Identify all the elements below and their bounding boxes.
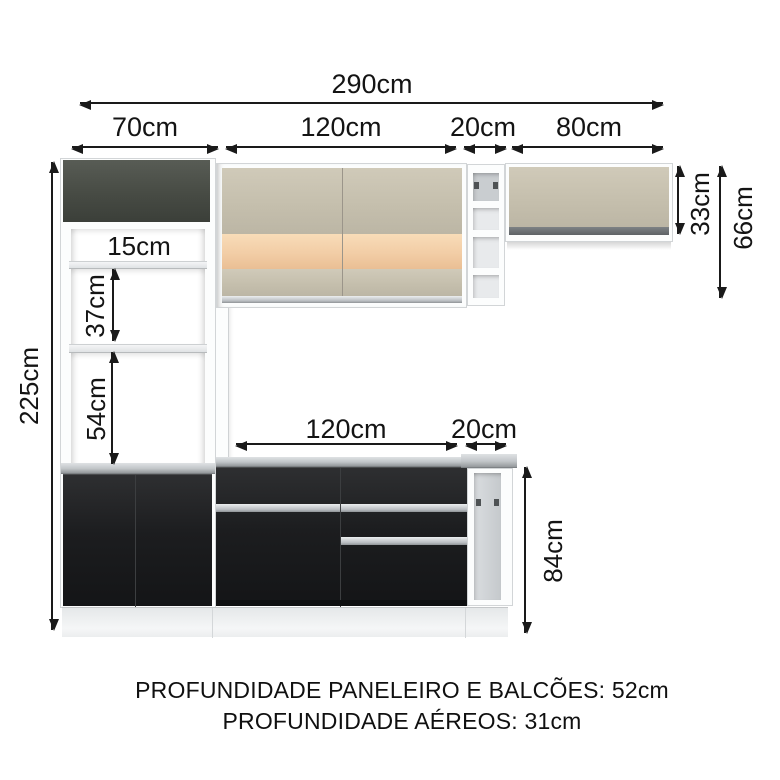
dim-arrow-33cm (677, 166, 679, 234)
niche-cell-4 (473, 275, 499, 298)
tall-base-door-divider (135, 475, 136, 607)
dim-arrow-total-width (80, 102, 663, 104)
plinth (62, 607, 508, 637)
dim-label-54cm: 54cm (83, 377, 109, 441)
tall-cabinet-base-top (61, 463, 215, 474)
hinge-icon (474, 182, 479, 189)
wall-cabinet-80-shadow (507, 242, 671, 250)
end-unit-interior (474, 473, 501, 600)
accent-strip-right (343, 234, 463, 269)
dim-label-33cm: 33cm (687, 172, 713, 236)
dim-arrow-37cm (112, 269, 114, 341)
dim-arrow-20cm-top (464, 146, 506, 148)
dim-label-15cm: 15cm (107, 233, 171, 260)
upper-cabinet-handle-rail (222, 296, 462, 303)
kitchen-dimensions-diagram: 290cm 70cm 120cm 20cm 80cm 225cm 15cm 37… (0, 0, 780, 780)
dim-label-20cm-top: 20cm (450, 113, 516, 141)
hinge-icon (494, 499, 499, 506)
niche-cell-3 (473, 237, 499, 268)
depth-note-line1: PROFUNDIDADE PANELEIRO E BALCÕES: 52cm (135, 676, 669, 705)
dim-label-20cm-base: 20cm (451, 415, 517, 443)
hinge-icon (476, 499, 481, 506)
base-cabinet-120 (216, 467, 467, 606)
accent-strip-left (222, 234, 342, 269)
tall-cabinet-shelf-1 (69, 261, 207, 269)
tall-cabinet-top-door (63, 160, 210, 222)
upper-cabinet-door-right (343, 168, 463, 234)
dim-label-66cm: 66cm (730, 186, 756, 250)
upper-cabinet-door-left (222, 168, 342, 234)
dim-arrow-120cm-base (236, 443, 457, 445)
dim-label-225cm: 225cm (16, 347, 42, 425)
end-unit-countertop (461, 454, 517, 468)
dim-label-80cm: 80cm (556, 113, 622, 141)
hinge-icon (493, 182, 498, 189)
upper-cabinet-120 (216, 163, 467, 308)
wall-cabinet-80-door (509, 167, 669, 227)
dim-arrow-54cm (111, 352, 113, 464)
dim-arrow-120cm-top (226, 146, 456, 148)
dim-arrow-20cm-base (466, 443, 506, 445)
wall-cabinet-80-front (509, 167, 669, 227)
base-handle-rail-top (216, 504, 467, 512)
wall-cabinet-80-handle-rail (509, 227, 669, 235)
tall-cabinet-shelf-2 (69, 344, 207, 353)
dim-label-37cm: 37cm (82, 274, 108, 338)
dim-label-total-width: 290cm (331, 70, 412, 98)
niche-cell-1 (473, 173, 499, 201)
dim-arrow-84cm (524, 467, 526, 633)
upper-cabinet-top-doors (222, 168, 462, 234)
base-cabinet-countertop (216, 457, 467, 467)
base-handle-rail-drawer (341, 537, 467, 545)
depth-note-line2: PROFUNDIDADE AÉREOS: 31cm (222, 707, 581, 736)
dim-arrow-80cm (512, 146, 663, 148)
upper-cabinet-accent-strip (222, 234, 462, 269)
dim-arrow-70cm (72, 146, 218, 148)
niche-cell-2 (473, 208, 499, 230)
upper-cabinet-lower-doors (222, 269, 462, 296)
upper-lower-door-left (222, 269, 342, 296)
dim-label-120cm-top: 120cm (300, 113, 381, 141)
tall-cabinet-base-doors (63, 474, 212, 606)
dim-arrow-225cm (51, 162, 53, 630)
plinth-seam (465, 608, 466, 638)
end-unit-open-shelf (467, 468, 513, 606)
niche-column-20 (467, 164, 505, 306)
dim-label-70cm: 70cm (112, 113, 178, 141)
upper-lower-door-right (343, 269, 463, 296)
base-bottom-shadow (216, 600, 467, 606)
plinth-seam (212, 608, 213, 638)
dim-arrow-66cm (719, 166, 721, 298)
wall-cabinet-80 (505, 163, 673, 242)
dim-label-84cm: 84cm (540, 519, 566, 583)
dim-label-120cm-base: 120cm (305, 415, 386, 443)
